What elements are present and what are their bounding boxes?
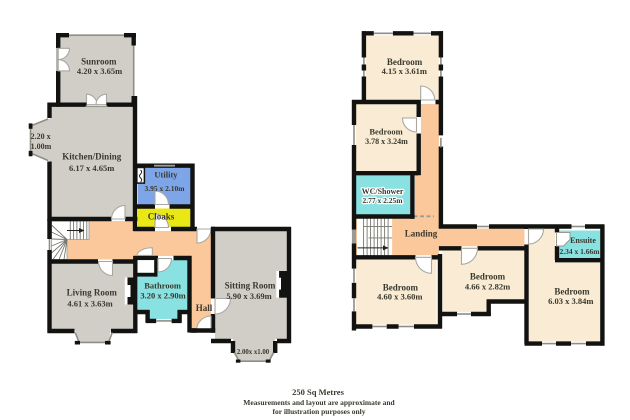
svg-text:Bathroom: Bathroom [144, 281, 181, 291]
svg-text:Landing: Landing [405, 229, 438, 239]
svg-text:Kitchen/Dining: Kitchen/Dining [62, 152, 122, 162]
svg-text:3.20 x 2.90m: 3.20 x 2.90m [140, 291, 185, 301]
svg-text:Sitting Room: Sitting Room [225, 281, 276, 291]
svg-text:Living Room: Living Room [67, 288, 118, 298]
svg-text:1.00m: 1.00m [31, 142, 52, 151]
svg-text:2.00x x1.00: 2.00x x1.00 [237, 349, 270, 356]
svg-text:4.20 x 3.65m: 4.20 x 3.65m [77, 66, 122, 76]
svg-text:4.15 x 3.61m: 4.15 x 3.61m [382, 66, 427, 76]
svg-text:Hall: Hall [196, 303, 213, 313]
svg-text:Utility: Utility [154, 169, 178, 179]
svg-text:Measurements and layout are ap: Measurements and layout are approximate … [243, 398, 395, 407]
svg-text:3.78 x 3.24m: 3.78 x 3.24m [365, 137, 408, 146]
svg-text:Bedroom: Bedroom [554, 287, 590, 297]
svg-text:4.60 x 3.60m: 4.60 x 3.60m [377, 292, 422, 302]
svg-text:6.03 x 3.84m: 6.03 x 3.84m [548, 296, 593, 306]
svg-text:2.34 x 1.66m: 2.34 x 1.66m [560, 247, 601, 256]
svg-text:Cloaks: Cloaks [148, 212, 175, 222]
svg-text:4.61 x 3.63m: 4.61 x 3.63m [67, 298, 112, 308]
svg-text:WC/Shower: WC/Shower [362, 187, 404, 196]
svg-text:2.20 x: 2.20 x [31, 132, 51, 141]
svg-text:250 Sq Metres: 250 Sq Metres [292, 387, 344, 397]
svg-text:4.66 x 2.82m: 4.66 x 2.82m [465, 282, 510, 292]
svg-text:3.95 x 2.10m: 3.95 x 2.10m [145, 184, 186, 193]
svg-text:2.77 x 2.25m: 2.77 x 2.25m [363, 196, 404, 205]
svg-text:Bedroom: Bedroom [369, 126, 402, 136]
svg-text:Bedroom: Bedroom [470, 272, 506, 282]
svg-text:Ensuite: Ensuite [570, 236, 596, 245]
svg-text:for illustration purposes only: for illustration purposes only [273, 407, 366, 416]
svg-text:5.90 x 3.69m: 5.90 x 3.69m [226, 291, 271, 301]
svg-text:6.17 x 4.65m: 6.17 x 4.65m [69, 163, 114, 173]
